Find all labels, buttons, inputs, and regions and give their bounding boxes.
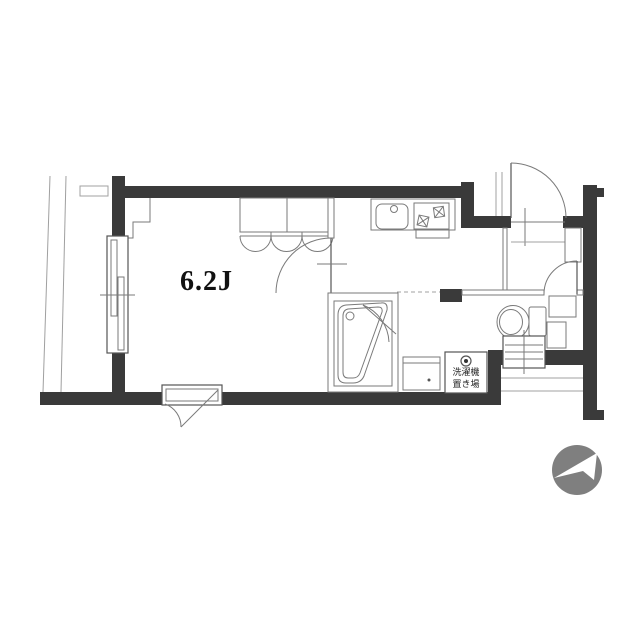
floor-plan: 6.2J 洗濯機 置き場 [0, 0, 640, 640]
vanity [403, 357, 440, 390]
faucet-icon [391, 206, 398, 213]
cabinet [547, 322, 566, 348]
toilet [497, 306, 546, 339]
pillar-notch [126, 198, 150, 238]
shelf [549, 296, 576, 317]
louver-window [503, 330, 545, 374]
genkan-edge [503, 228, 507, 290]
floor-plan-drawing [0, 0, 640, 640]
left-window [100, 236, 135, 353]
balcony [43, 176, 108, 392]
stove-burner-icon [433, 206, 444, 217]
room-size-label: 6.2J [180, 266, 233, 298]
washer-space-label: 洗濯機 置き場 [445, 367, 487, 391]
closet [240, 198, 333, 252]
entrance-door-swing [511, 163, 566, 218]
stove-burner-icon [417, 215, 429, 227]
compass-icon [552, 445, 602, 495]
washer-label-line2: 置き場 [445, 379, 487, 391]
bathroom [328, 293, 398, 392]
washroom-door-swing [544, 261, 577, 294]
bottom-window [162, 385, 222, 427]
kitchen [371, 199, 455, 238]
shoe-cabinet [565, 228, 581, 262]
washer-label-line1: 洗濯機 [445, 367, 487, 379]
sink-icon [376, 204, 408, 229]
